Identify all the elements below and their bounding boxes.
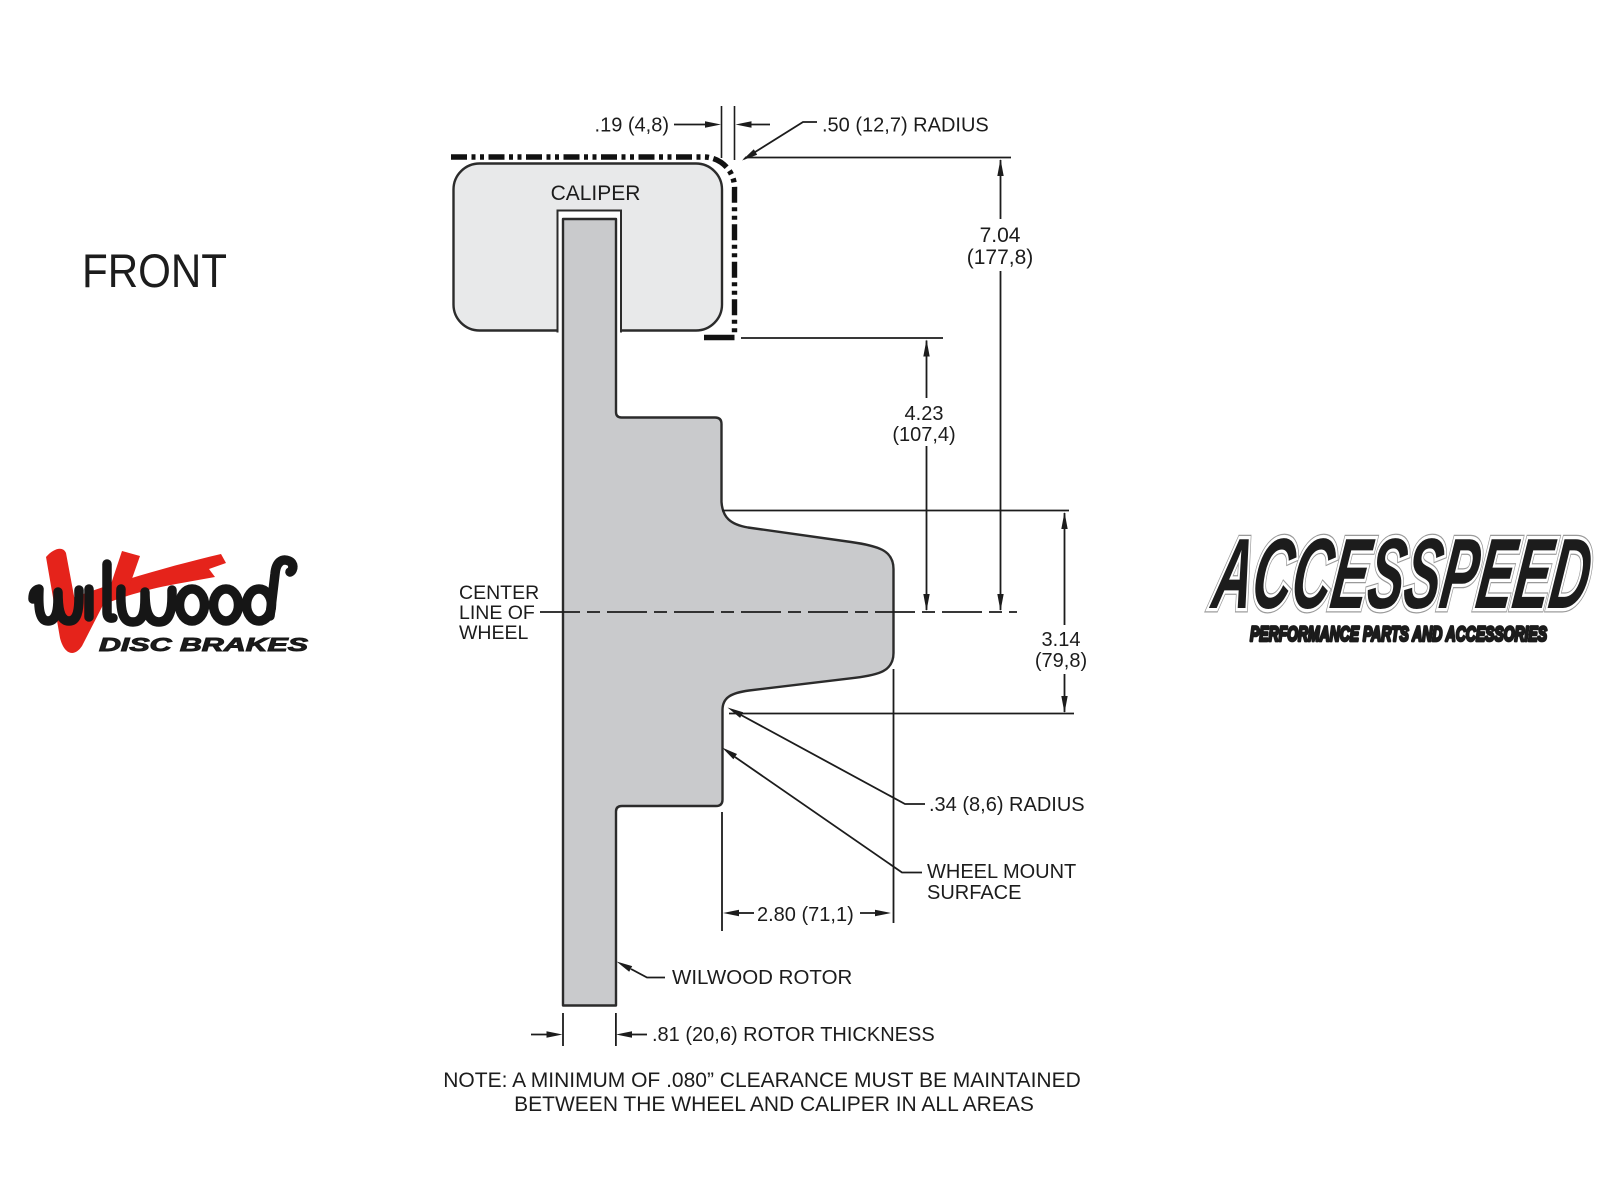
svg-text:4.23: 4.23 (905, 403, 944, 425)
svg-text:BETWEEN THE WHEEL AND CALIPER: BETWEEN THE WHEEL AND CALIPER IN ALL ARE… (514, 1093, 1034, 1116)
svg-text:.81 (20,6) ROTOR THICKNESS: .81 (20,6) ROTOR THICKNESS (652, 1024, 935, 1046)
svg-text:(177,8): (177,8) (967, 246, 1034, 269)
svg-text:7.04: 7.04 (980, 224, 1021, 247)
svg-text:WILWOOD ROTOR: WILWOOD ROTOR (672, 966, 852, 989)
svg-text:CALIPER: CALIPER (551, 182, 641, 205)
svg-text:WHEEL: WHEEL (459, 622, 529, 644)
svg-text:SURFACE: SURFACE (927, 882, 1021, 904)
svg-text:FRONT: FRONT (82, 244, 227, 297)
svg-text:3.14: 3.14 (1042, 629, 1081, 651)
svg-text:WHEEL MOUNT: WHEEL MOUNT (927, 861, 1076, 883)
svg-text:DISC BRAKES: DISC BRAKES (99, 635, 308, 655)
svg-text:NOTE: A MINIMUM OF .080” CLEAR: NOTE: A MINIMUM OF .080” CLEARANCE MUST … (443, 1069, 1081, 1092)
svg-text:(107,4): (107,4) (892, 424, 955, 446)
svg-text:2.80 (71,1): 2.80 (71,1) (757, 904, 854, 926)
svg-text:.19 (4,8): .19 (4,8) (595, 115, 669, 137)
svg-text:LINE OF: LINE OF (459, 602, 535, 624)
svg-text:.50 (12,7) RADIUS: .50 (12,7) RADIUS (822, 115, 989, 137)
svg-text:CENTER: CENTER (459, 582, 539, 604)
svg-text:ACCESSPEED: ACCESSPEED (1205, 518, 1598, 629)
svg-text:.34 (8,6) RADIUS: .34 (8,6) RADIUS (929, 794, 1085, 816)
svg-text:PERFORMANCE PARTS AND ACCESSOR: PERFORMANCE PARTS AND ACCESSORIES (1250, 623, 1547, 646)
svg-text:(79,8): (79,8) (1035, 650, 1087, 672)
